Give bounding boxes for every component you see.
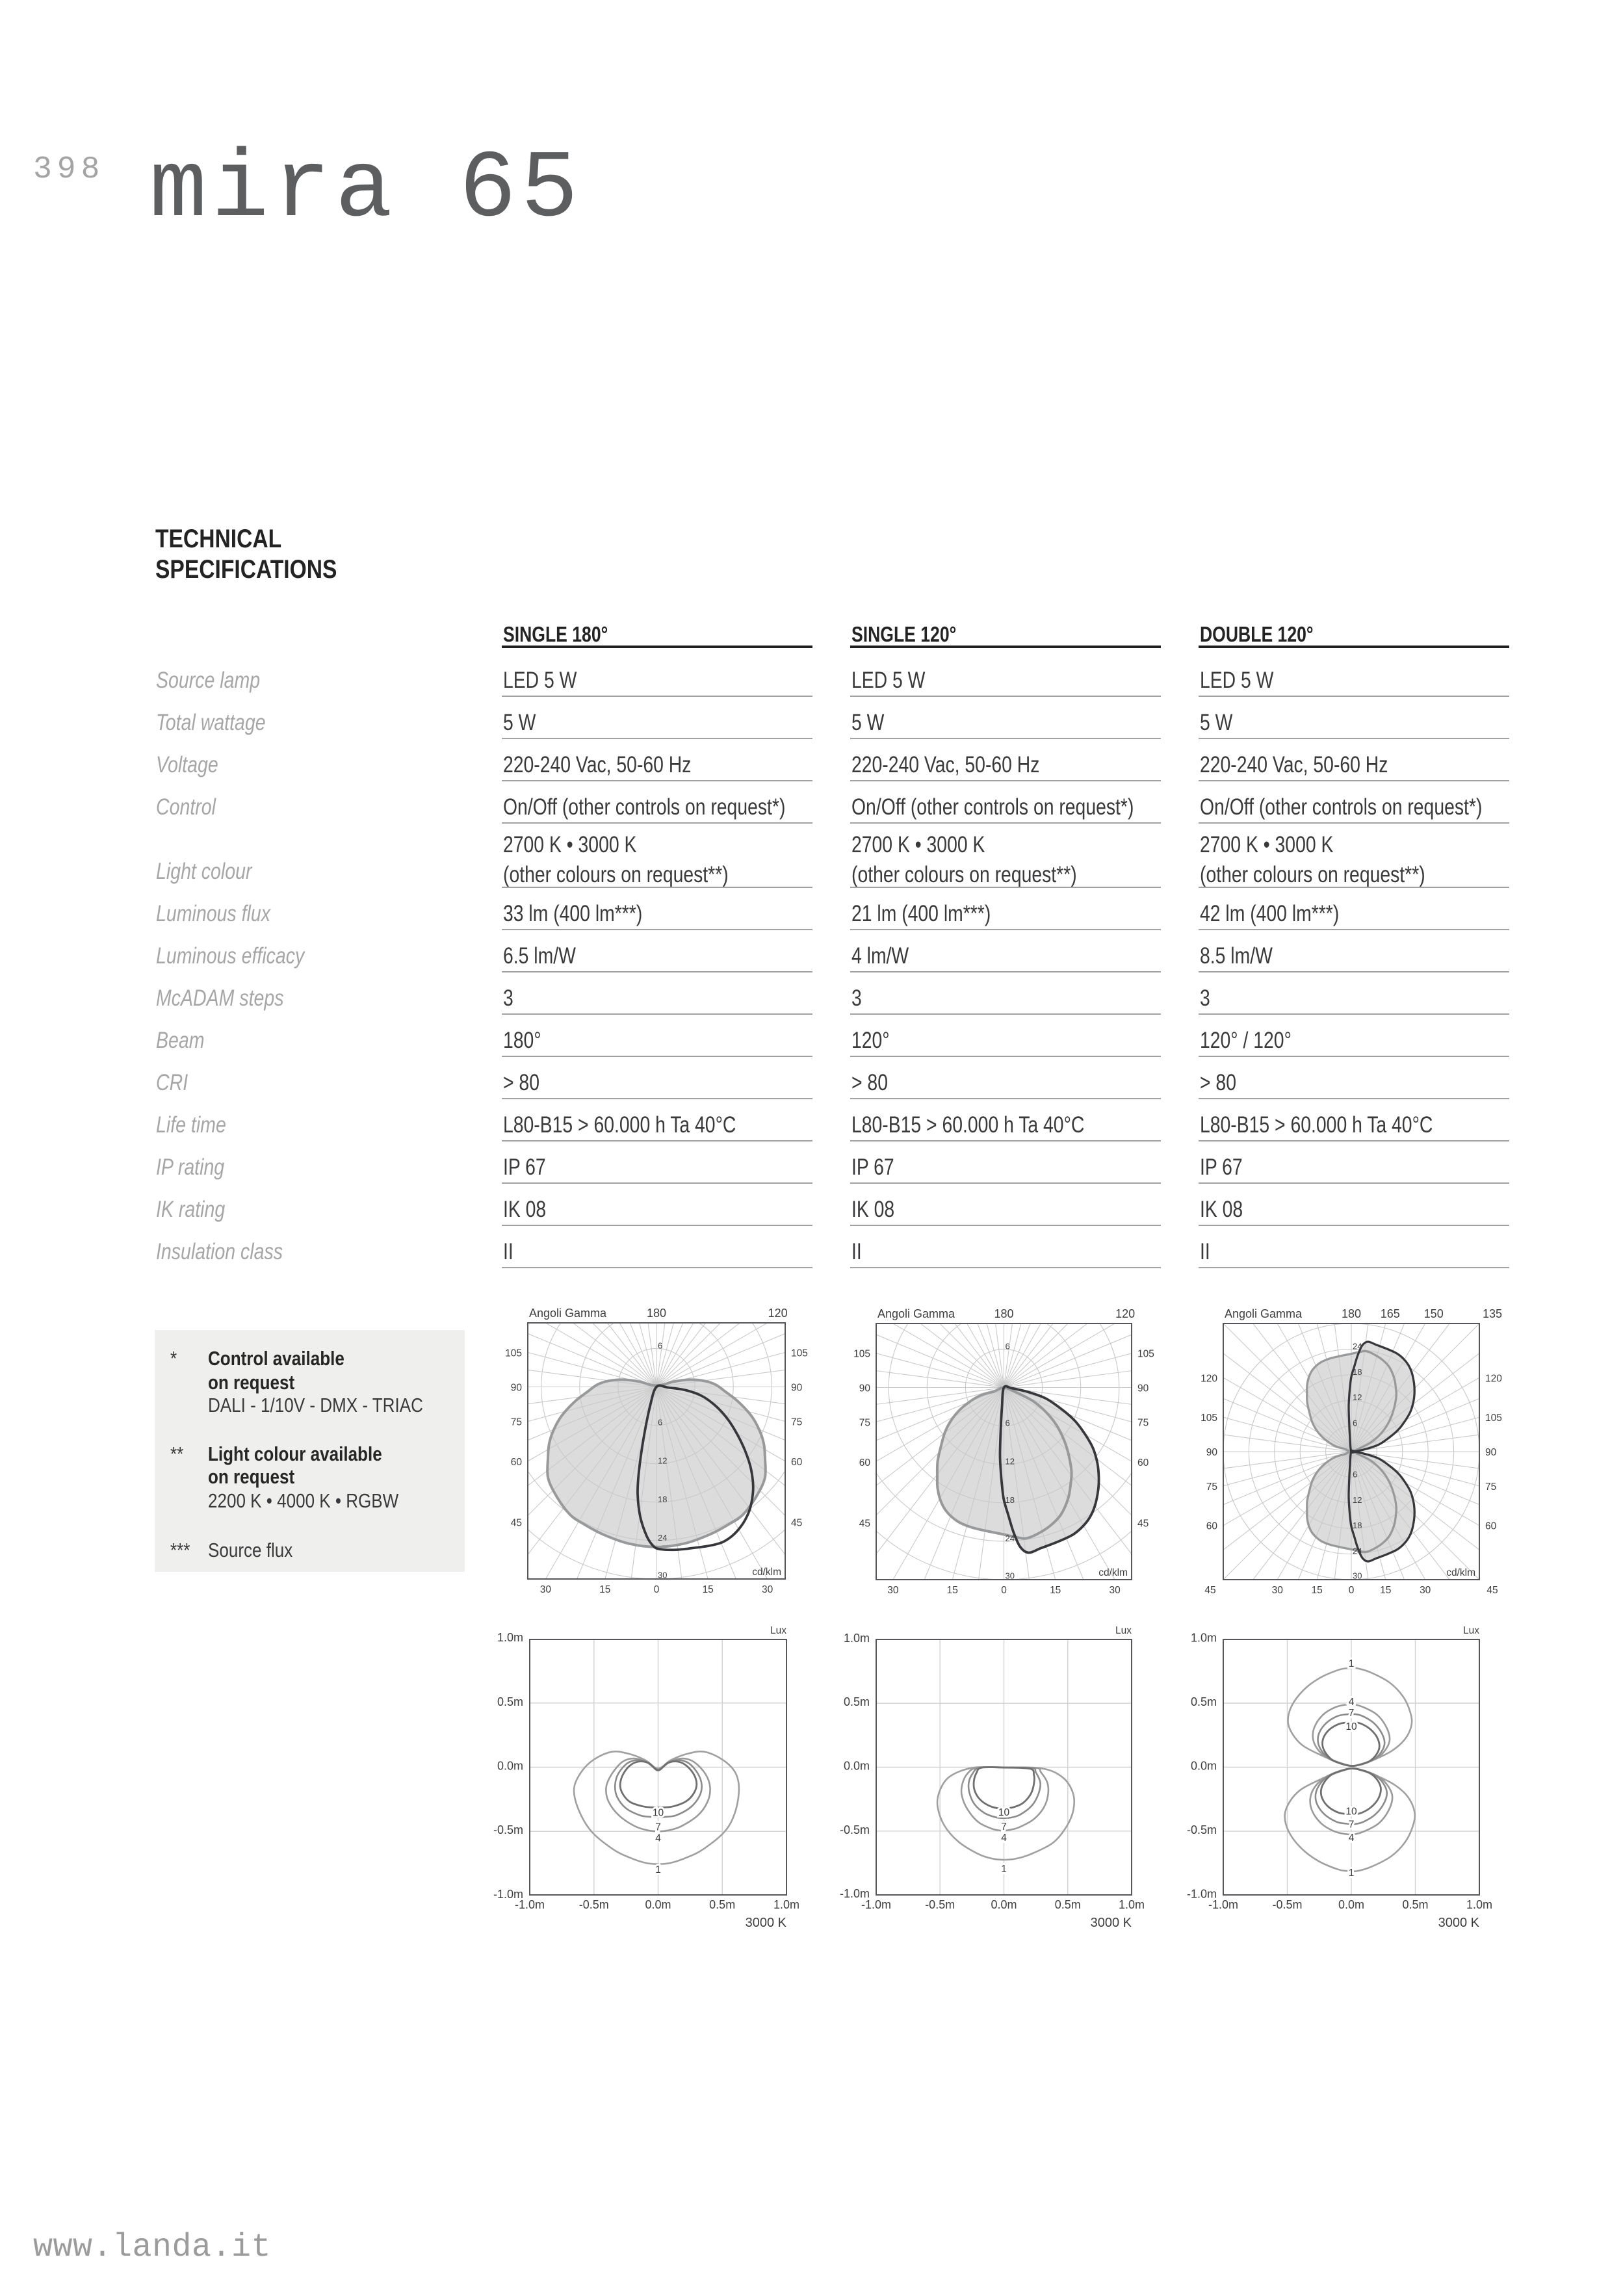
svg-text:1.0m: 1.0m <box>1119 1898 1145 1911</box>
svg-text:0: 0 <box>1001 1585 1007 1596</box>
svg-text:Angoli Gamma: Angoli Gamma <box>529 1307 607 1320</box>
svg-text:15: 15 <box>1312 1585 1323 1596</box>
svg-text:12: 12 <box>1353 1495 1362 1505</box>
svg-text:0.0m: 0.0m <box>1191 1760 1217 1773</box>
svg-text:30: 30 <box>540 1584 552 1595</box>
svg-text:90: 90 <box>1137 1383 1149 1394</box>
svg-text:0.5m: 0.5m <box>1402 1898 1428 1911</box>
svg-text:180: 180 <box>647 1307 666 1320</box>
svg-text:24: 24 <box>1006 1533 1015 1543</box>
svg-text:60: 60 <box>1485 1521 1497 1532</box>
svg-text:0: 0 <box>654 1584 660 1595</box>
svg-text:105: 105 <box>1137 1348 1154 1359</box>
svg-text:0.5m: 0.5m <box>1055 1898 1081 1911</box>
svg-text:120: 120 <box>1201 1373 1217 1384</box>
svg-text:10: 10 <box>1345 1807 1357 1818</box>
svg-text:-0.5m: -0.5m <box>840 1823 870 1836</box>
svg-text:1: 1 <box>655 1864 661 1875</box>
svg-text:6: 6 <box>1353 1469 1357 1479</box>
svg-text:7: 7 <box>1001 1821 1007 1833</box>
svg-text:-1.0m: -1.0m <box>1208 1898 1238 1911</box>
svg-text:15: 15 <box>1050 1585 1061 1596</box>
svg-text:10: 10 <box>653 1807 664 1818</box>
svg-text:15: 15 <box>599 1584 610 1595</box>
svg-text:120: 120 <box>1115 1307 1135 1320</box>
svg-text:-0.5m: -0.5m <box>925 1898 955 1911</box>
svg-text:60: 60 <box>1206 1521 1218 1532</box>
svg-text:1.0m: 1.0m <box>773 1898 799 1911</box>
svg-text:4: 4 <box>1001 1833 1007 1844</box>
svg-text:Lux: Lux <box>1463 1625 1479 1636</box>
svg-text:90: 90 <box>859 1383 871 1394</box>
svg-text:45: 45 <box>859 1519 870 1530</box>
svg-text:90: 90 <box>1485 1447 1497 1458</box>
svg-text:105: 105 <box>1485 1413 1502 1424</box>
svg-text:1: 1 <box>1349 1658 1355 1669</box>
svg-text:18: 18 <box>1353 1520 1362 1530</box>
svg-text:12: 12 <box>1006 1457 1015 1467</box>
svg-text:30: 30 <box>1006 1571 1015 1581</box>
svg-text:105: 105 <box>853 1348 870 1359</box>
svg-text:0: 0 <box>1349 1585 1355 1596</box>
svg-text:30: 30 <box>1353 1571 1362 1581</box>
svg-text:7: 7 <box>1349 1708 1355 1719</box>
svg-text:1: 1 <box>1349 1868 1355 1879</box>
svg-text:15: 15 <box>703 1584 714 1595</box>
svg-text:45: 45 <box>511 1518 522 1529</box>
svg-text:6: 6 <box>1353 1418 1357 1428</box>
svg-text:6: 6 <box>1006 1418 1010 1428</box>
svg-text:18: 18 <box>1006 1495 1015 1505</box>
svg-text:1.0m: 1.0m <box>1466 1898 1492 1911</box>
svg-text:165: 165 <box>1381 1307 1400 1320</box>
svg-text:30: 30 <box>762 1584 773 1595</box>
svg-text:180: 180 <box>994 1307 1013 1320</box>
svg-text:12: 12 <box>658 1456 667 1466</box>
svg-text:Angoli Gamma: Angoli Gamma <box>1225 1307 1303 1320</box>
svg-text:-0.5m: -0.5m <box>1272 1898 1302 1911</box>
svg-text:Lux: Lux <box>770 1625 786 1636</box>
svg-text:6: 6 <box>1006 1341 1010 1351</box>
svg-text:90: 90 <box>1206 1447 1218 1458</box>
svg-text:6: 6 <box>658 1340 662 1350</box>
svg-text:0.5m: 0.5m <box>1191 1695 1217 1708</box>
svg-text:cd/klm: cd/klm <box>752 1567 781 1578</box>
svg-text:-1.0m: -1.0m <box>861 1898 891 1911</box>
svg-text:60: 60 <box>511 1457 523 1468</box>
svg-text:105: 105 <box>505 1348 522 1359</box>
svg-text:0.0m: 0.0m <box>1338 1898 1364 1911</box>
svg-text:cd/klm: cd/klm <box>1446 1567 1475 1578</box>
svg-text:45: 45 <box>1204 1585 1215 1596</box>
svg-text:75: 75 <box>1137 1418 1149 1429</box>
svg-text:75: 75 <box>859 1418 870 1429</box>
svg-text:60: 60 <box>859 1457 871 1468</box>
svg-text:135: 135 <box>1483 1307 1502 1320</box>
svg-text:-0.5m: -0.5m <box>1187 1823 1217 1836</box>
svg-text:0.0m: 0.0m <box>645 1898 671 1911</box>
svg-text:10: 10 <box>998 1807 1010 1818</box>
svg-text:0.0m: 0.0m <box>844 1760 870 1773</box>
svg-text:24: 24 <box>658 1533 667 1543</box>
svg-text:0.5m: 0.5m <box>709 1898 735 1911</box>
svg-text:-0.5m: -0.5m <box>493 1823 523 1836</box>
svg-text:18: 18 <box>1353 1367 1362 1377</box>
svg-text:105: 105 <box>1201 1413 1217 1424</box>
svg-text:90: 90 <box>511 1383 523 1394</box>
svg-text:75: 75 <box>1485 1481 1496 1493</box>
svg-text:60: 60 <box>1137 1457 1149 1468</box>
svg-text:75: 75 <box>1206 1481 1217 1493</box>
svg-text:45: 45 <box>1487 1585 1498 1596</box>
svg-text:75: 75 <box>511 1417 522 1428</box>
svg-text:30: 30 <box>887 1585 899 1596</box>
svg-text:45: 45 <box>791 1518 802 1529</box>
svg-text:15: 15 <box>947 1585 958 1596</box>
svg-text:30: 30 <box>1420 1585 1431 1596</box>
svg-text:7: 7 <box>655 1821 661 1833</box>
svg-text:15: 15 <box>1380 1585 1391 1596</box>
svg-text:-0.5m: -0.5m <box>579 1898 609 1911</box>
svg-text:7: 7 <box>1349 1820 1355 1831</box>
svg-text:45: 45 <box>1137 1519 1149 1530</box>
svg-text:0.5m: 0.5m <box>844 1695 870 1708</box>
svg-text:cd/klm: cd/klm <box>1098 1567 1128 1578</box>
svg-text:24: 24 <box>1353 1341 1362 1351</box>
svg-text:90: 90 <box>791 1383 803 1394</box>
svg-text:120: 120 <box>768 1307 788 1320</box>
svg-text:6: 6 <box>658 1418 662 1428</box>
svg-text:75: 75 <box>791 1417 802 1428</box>
svg-text:4: 4 <box>655 1833 661 1844</box>
svg-text:0.0m: 0.0m <box>991 1898 1017 1911</box>
svg-text:105: 105 <box>791 1348 808 1359</box>
svg-text:18: 18 <box>658 1494 667 1504</box>
svg-text:0.5m: 0.5m <box>497 1695 523 1708</box>
svg-text:60: 60 <box>791 1457 803 1468</box>
svg-text:Lux: Lux <box>1115 1625 1132 1636</box>
svg-text:Angoli Gamma: Angoli Gamma <box>877 1307 955 1320</box>
svg-text:12: 12 <box>1353 1392 1362 1402</box>
svg-text:1.0m: 1.0m <box>844 1632 870 1645</box>
svg-text:1.0m: 1.0m <box>497 1631 523 1644</box>
svg-text:24: 24 <box>1353 1546 1362 1556</box>
svg-text:-1.0m: -1.0m <box>515 1898 545 1911</box>
svg-text:4: 4 <box>1349 1697 1355 1708</box>
svg-text:30: 30 <box>1109 1585 1121 1596</box>
svg-text:150: 150 <box>1424 1307 1444 1320</box>
svg-text:30: 30 <box>658 1571 667 1580</box>
svg-text:30: 30 <box>1272 1585 1284 1596</box>
svg-text:4: 4 <box>1349 1833 1355 1844</box>
svg-text:1.0m: 1.0m <box>1191 1632 1217 1645</box>
svg-text:1: 1 <box>1001 1864 1007 1875</box>
svg-text:10: 10 <box>1345 1721 1357 1732</box>
svg-text:180: 180 <box>1342 1307 1361 1320</box>
svg-text:0.0m: 0.0m <box>497 1760 523 1773</box>
svg-text:120: 120 <box>1485 1373 1502 1384</box>
